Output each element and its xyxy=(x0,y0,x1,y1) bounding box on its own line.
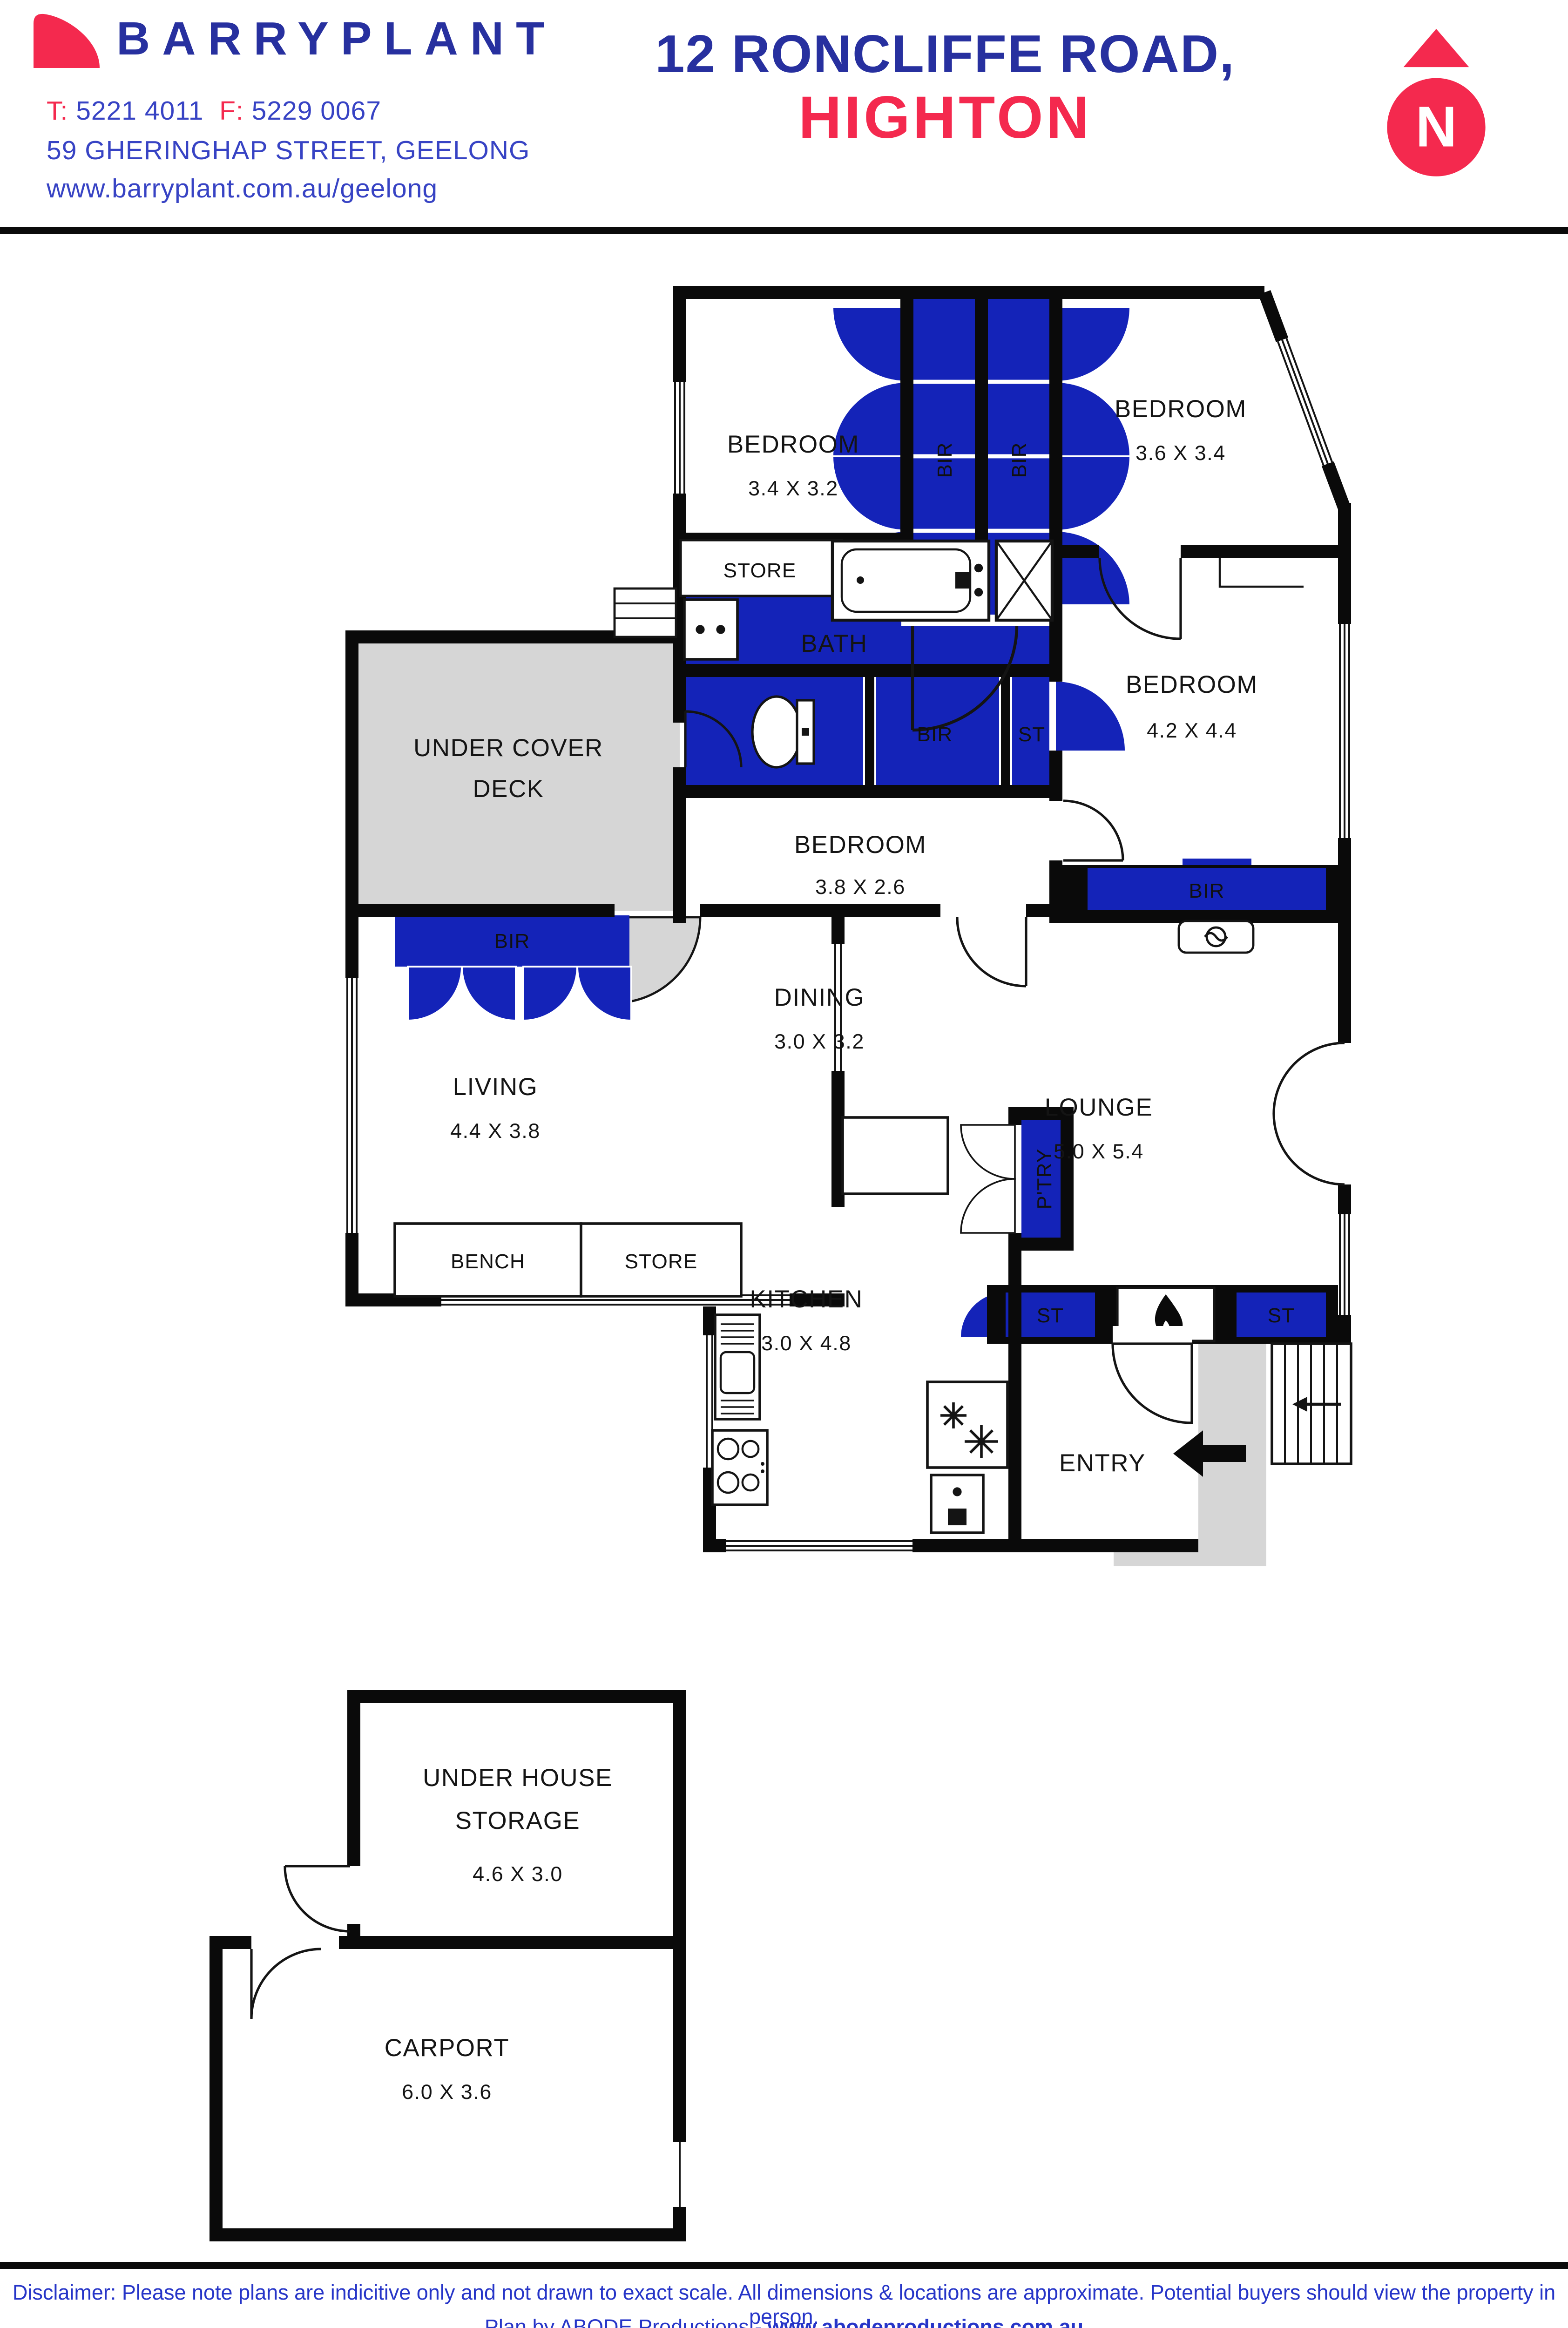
stairs xyxy=(1272,1344,1351,1464)
label-store-top: STORE xyxy=(723,559,797,582)
dims-bed1: 3.4 X 3.2 xyxy=(748,477,838,500)
label-bir-a: BIR xyxy=(933,442,956,478)
dims-carport: 6.0 X 3.6 xyxy=(402,2080,492,2104)
label-bir-bed3: BIR xyxy=(1189,880,1225,902)
dims-dining: 3.0 X 3.2 xyxy=(774,1030,865,1053)
label-living: LIVING xyxy=(453,1073,538,1101)
label-deck-2: DECK xyxy=(473,775,544,803)
plan-credit-text: Plan by ABODE Productions - xyxy=(485,2315,768,2328)
label-st-small: ST xyxy=(1018,723,1046,746)
label-bir-living: BIR xyxy=(494,930,530,953)
label-bed4: BEDROOM xyxy=(794,831,926,859)
dims-lounge: 5.0 X 5.4 xyxy=(1054,1140,1144,1163)
label-carport: CARPORT xyxy=(385,2034,509,2062)
label-uhs-1: UNDER HOUSE xyxy=(423,1764,613,1792)
label-st-lounge-right: ST xyxy=(1268,1304,1295,1327)
oven-tower-icon xyxy=(715,1315,760,1419)
cooktop-icon xyxy=(712,1430,767,1505)
dims-bed3: 4.2 X 4.4 xyxy=(1147,719,1237,742)
dims-kitchen: 3.0 X 4.8 xyxy=(761,1332,852,1355)
floor-plan-svg: BEDROOM 3.4 X 3.2 BEDROOM 3.6 X 3.4 BIR … xyxy=(0,0,1568,2328)
label-st-lounge-left: ST xyxy=(1037,1304,1064,1327)
plan-credit: Plan by ABODE Productions - www.abodepro… xyxy=(0,2315,1568,2328)
label-deck-1: UNDER COVER xyxy=(413,734,603,762)
bed3-ceiling-step xyxy=(1220,558,1304,587)
fridge-icon xyxy=(927,1382,1007,1468)
entry-door-gap xyxy=(1113,1326,1192,1344)
pantry-doors xyxy=(961,1125,1015,1233)
label-bench: BENCH xyxy=(451,1250,525,1273)
dims-bed4: 3.8 X 2.6 xyxy=(815,875,906,899)
dims-bed2: 3.6 X 3.4 xyxy=(1135,441,1226,465)
dims-uhs: 4.6 X 3.0 xyxy=(473,1862,563,1886)
bir-bed3-heater-icon xyxy=(1179,921,1253,953)
footer-rule xyxy=(0,2262,1568,2269)
dining-counter xyxy=(843,1117,948,1194)
label-lounge: LOUNGE xyxy=(1045,1094,1153,1121)
shower-icon xyxy=(996,541,1052,620)
label-pantry: P'TRY xyxy=(1033,1149,1056,1210)
label-bed2: BEDROOM xyxy=(1115,395,1247,423)
dims-living: 4.4 X 3.8 xyxy=(450,1119,541,1143)
toilet-icon xyxy=(752,697,814,767)
label-bed1: BEDROOM xyxy=(727,431,859,458)
label-bir-b: BIR xyxy=(1008,442,1031,478)
sink-icon xyxy=(931,1475,983,1533)
label-bath: BATH xyxy=(801,630,867,657)
label-bed3: BEDROOM xyxy=(1126,671,1258,698)
label-bir-small: BIR xyxy=(917,723,953,746)
front-door-swing xyxy=(1113,1344,1192,1423)
label-entry: ENTRY xyxy=(1059,1449,1146,1477)
plan-credit-link[interactable]: www.abodeproductions.com.au xyxy=(768,2315,1083,2328)
vanity-icon xyxy=(684,600,737,659)
bathtub-icon xyxy=(832,541,989,620)
label-store-living: STORE xyxy=(625,1250,698,1273)
label-dining: DINING xyxy=(774,984,865,1011)
label-uhs-2: STORAGE xyxy=(455,1807,580,1834)
label-kitchen: KITCHEN xyxy=(750,1286,863,1313)
floor-plan-page: BARRYPLANT T: 5221 4011 F: 5229 0067 59 … xyxy=(0,0,1568,2328)
deck-steps xyxy=(615,589,676,637)
